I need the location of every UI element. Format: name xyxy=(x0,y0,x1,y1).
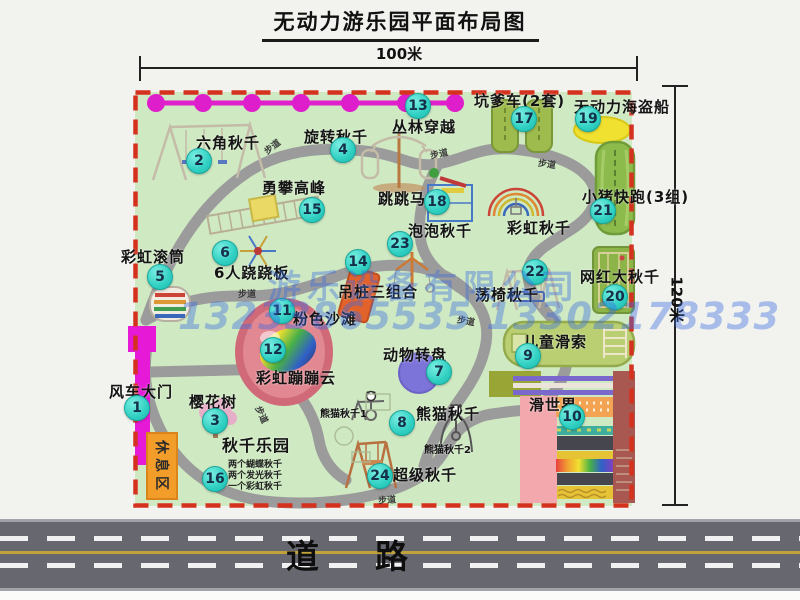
badge-4: 4 xyxy=(330,137,356,163)
badge-24: 24 xyxy=(367,463,393,489)
badge-13: 13 xyxy=(405,93,431,119)
top-dimension-tick-right xyxy=(636,56,638,81)
rainbow-roller-icon xyxy=(150,287,190,321)
badge-9: 9 xyxy=(515,343,541,369)
label-hanging-piles: 吊桩三组合 xyxy=(338,281,418,302)
badge-19: 19 xyxy=(575,106,601,132)
badge-14: 14 xyxy=(345,249,371,275)
badge-17: 17 xyxy=(511,106,537,132)
badge-6: 6 xyxy=(212,240,238,266)
label-rainbow-cloud: 彩虹蹦蹦云 xyxy=(256,367,336,388)
label-panda-swing: 熊猫秋千 xyxy=(416,403,480,424)
right-dimension-label: 120米 xyxy=(667,275,688,325)
label-panda-swing-2: 熊猫秋千2 xyxy=(424,441,471,456)
badge-2: 2 xyxy=(186,148,212,174)
page-title: 无动力游乐园平面布局图 xyxy=(262,6,539,42)
top-dimension-line xyxy=(140,67,637,69)
label-panda-swing-1: 熊猫秋千1 xyxy=(320,405,367,420)
swing-paradise-note-1: 两个蝴蝶秋千 xyxy=(228,460,282,471)
swing-paradise-notes: 两个蝴蝶秋千 两个发光秋千 一个彩虹秋千 xyxy=(228,460,282,493)
trail-tag-4: 步道 xyxy=(238,287,256,300)
label-swing-paradise: 秋千乐园 xyxy=(222,432,290,456)
label-big-swing: 网红大秋千 xyxy=(580,266,660,287)
badge-12: 12 xyxy=(260,337,286,363)
swing-paradise-note-2: 两个发光秋千 xyxy=(228,471,282,482)
swing-paradise-note-3: 一个彩虹秋千 xyxy=(228,482,282,493)
right-dimension-tick-top xyxy=(662,85,688,87)
rest-area-label: 休息区 xyxy=(152,434,172,500)
label-rainbow-roller: 彩虹滚筒 xyxy=(121,246,185,267)
park-layout-screenshot: 无动力游乐园平面布局图 100米 120米 xyxy=(0,0,800,600)
label-rainbow-swing: 彩虹秋千 xyxy=(507,217,571,238)
label-bubble-swing: 泡泡秋千 xyxy=(408,220,472,241)
right-dimension-tick-bottom xyxy=(662,504,688,506)
badge-18: 18 xyxy=(424,189,450,215)
badge-8: 8 xyxy=(389,410,415,436)
badge-11: 11 xyxy=(269,298,295,324)
badge-22: 22 xyxy=(522,259,548,285)
title-container: 无动力游乐园平面布局图 xyxy=(0,6,800,42)
badge-16: 16 xyxy=(202,466,228,492)
badge-3: 3 xyxy=(202,408,228,434)
badge-10: 10 xyxy=(559,404,585,430)
label-jumping-horse: 跳跳马 xyxy=(378,188,426,209)
trail-tag-7: 步道 xyxy=(378,492,397,506)
badge-15: 15 xyxy=(299,197,325,223)
badge-5: 5 xyxy=(147,264,173,290)
badge-23: 23 xyxy=(387,231,413,257)
label-pink-beach: 粉色沙滩 xyxy=(293,308,357,329)
label-super-swing: 超级秋千 xyxy=(393,464,457,485)
top-dimension-tick-left xyxy=(139,56,141,81)
road-label: 道路 xyxy=(286,530,464,578)
label-climbing-peak: 勇攀高峰 xyxy=(262,177,326,198)
badge-21: 21 xyxy=(590,198,616,224)
badge-7: 7 xyxy=(426,359,452,385)
label-swing-chair: 荡椅秋千 xyxy=(475,284,539,305)
label-jungle-crossing: 丛林穿越 xyxy=(392,116,456,137)
badge-1: 1 xyxy=(124,395,150,421)
trail-tag-3: 步道 xyxy=(537,156,557,171)
badge-20: 20 xyxy=(602,284,628,310)
top-dimension-label: 100米 xyxy=(356,43,442,64)
